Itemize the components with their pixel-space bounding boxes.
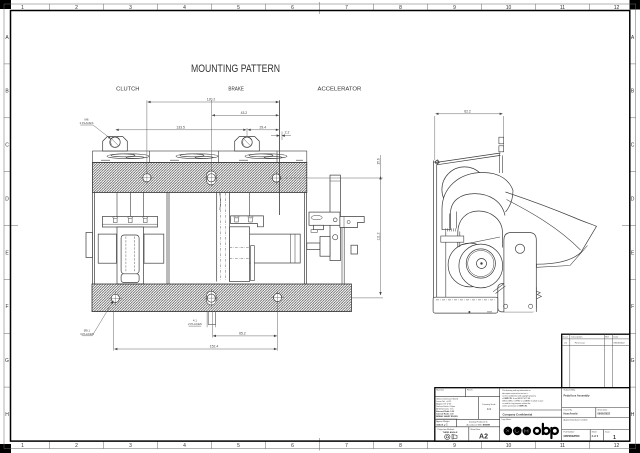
svg-text:5: 5 [237,443,240,449]
svg-text:Company Confidential: Company Confidential [503,412,533,416]
svg-text:Projection Method:: Projection Method: [438,428,455,431]
svg-text:3: 3 [129,443,132,449]
svg-text:43.2: 43.2 [241,111,248,115]
svg-text:H: H [631,412,635,418]
svg-text:133.5: 133.5 [176,125,185,129]
svg-text:F: F [631,304,634,310]
svg-text:Sheet Size:: Sheet Size: [470,428,481,431]
svg-text:F: F [5,304,8,310]
svg-text:descriptive material set out o: descriptive material set out on it [502,392,528,395]
svg-text:Subassembly:: Subassembly: [564,390,576,392]
svg-text:29.4: 29.4 [259,125,266,129]
svg-text:G: G [631,358,635,364]
svg-text:ACCELERATOR: ACCELERATOR [318,87,362,93]
svg-text:D: D [5,196,9,202]
svg-text:Huw Arnold: Huw Arnold [564,413,578,416]
svg-text:written permission of OBP LTD.: written permission of OBP LTD. [502,405,528,408]
svg-text:or used for any purpose withou: or used for any purpose without the [502,402,530,405]
svg-text:2.2: 2.2 [285,130,290,134]
svg-text:Approved (and part number):: Approved (and part number): [564,418,589,421]
svg-text:15.6: 15.6 [376,158,380,164]
svg-text:10: 10 [506,443,512,449]
svg-text:1: 1 [21,443,24,449]
svg-text:H: H [5,412,9,418]
svg-text:First Issue: First Issue [575,342,586,345]
svg-text:CLUTCH: CLUTCH [116,87,139,93]
svg-text:Drawn By:: Drawn By: [564,408,573,411]
svg-text:7: 7 [345,443,348,449]
svg-text:Drawing Scale: Drawing Scale [483,404,497,406]
svg-text:9: 9 [453,443,456,449]
svg-text:6: 6 [291,443,294,449]
svg-text:Drawing Produced In: Drawing Produced In [469,421,488,423]
svg-text:DISCLOSED, COPIED or LOANED in: DISCLOSED, COPIED or LOANED in whole or … [502,399,544,402]
svg-text:1:1: 1:1 [487,407,491,411]
svg-text:of OBP LTD. It and MUST NOT BE: of OBP LTD. It and MUST NOT BE [502,397,531,400]
svg-text:2 of 2: 2 of 2 [592,435,599,438]
svg-text:Issue:: Issue: [605,432,611,434]
svg-text:THIRD ANGLE: THIRD ANGLE [443,431,458,434]
svg-text:09/05/2022: 09/05/2022 [598,413,611,416]
svg-text:BRAKE: BRAKE [228,87,244,93]
svg-text:Date: Date [614,336,619,339]
svg-text:MOUNTING PATTERN: MOUNTING PATTERN [191,63,280,75]
svg-text:12: 12 [614,443,620,449]
svg-text:Part Number:: Part Number: [564,431,576,434]
svg-text:65.2: 65.2 [239,331,246,335]
svg-text:Ref: Ref [605,337,609,339]
svg-text:8: 8 [399,443,402,449]
svg-text:Sheet:: Sheet: [592,431,598,434]
svg-text:Approx Weight:: Approx Weight: [436,420,450,423]
svg-text:D: D [631,196,635,202]
svg-text:Issue: Issue [563,337,569,339]
svg-text:1: 1 [613,435,616,441]
svg-text:Accordance With: BS8888: Accordance With: BS8888 [466,423,490,426]
svg-text:120.2: 120.2 [207,98,216,102]
svg-text:Material:: Material: [436,389,444,392]
svg-text:4: 4 [183,443,186,449]
svg-text:4 PLACES: 4 PLACES [80,332,94,336]
svg-text:11: 11 [560,443,565,449]
svg-text:C: C [5,143,9,149]
svg-text:BREAK SHARP EDGES: BREAK SHARP EDGES [436,415,458,418]
svg-text:Pedal box Assembly: Pedal box Assembly [564,393,591,397]
svg-text:are the confidential and copyr: are the confidential and copyright prope… [502,394,536,397]
svg-text:Finish:: Finish: [467,390,473,392]
svg-text:62.2: 62.2 [464,109,471,113]
svg-text:Logo Name:: Logo Name: [502,419,512,421]
svg-text:2 PLACES: 2 PLACES [188,322,202,326]
svg-text:A2: A2 [479,434,488,441]
svg-text:09/05/2022: 09/05/2022 [614,343,626,345]
svg-text:Description: Description [571,336,583,339]
svg-text:This drawing and any informati: This drawing and any information or [502,389,531,392]
svg-text:152.4: 152.4 [210,345,219,349]
svg-text:111.2: 111.2 [376,232,380,240]
svg-text:C: C [631,143,635,149]
svg-text:2: 2 [75,443,78,449]
svg-text:G: G [5,358,9,364]
svg-text:OBP0802PRC: OBP0802PRC [564,435,580,438]
svg-text:2 PLACES: 2 PLACES [80,121,94,125]
svg-text:Sheet Date:: Sheet Date: [598,408,608,411]
